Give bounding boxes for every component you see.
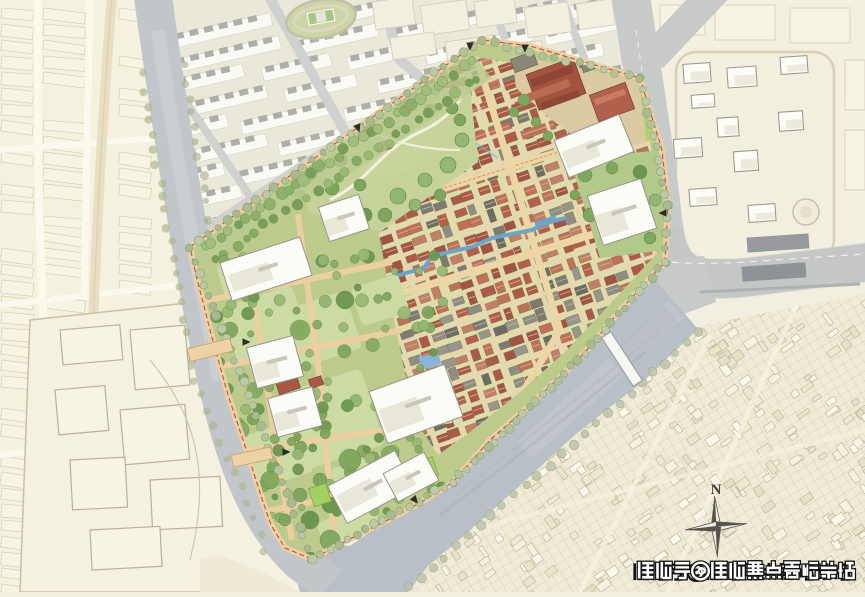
- svg-text:N: N: [711, 482, 722, 498]
